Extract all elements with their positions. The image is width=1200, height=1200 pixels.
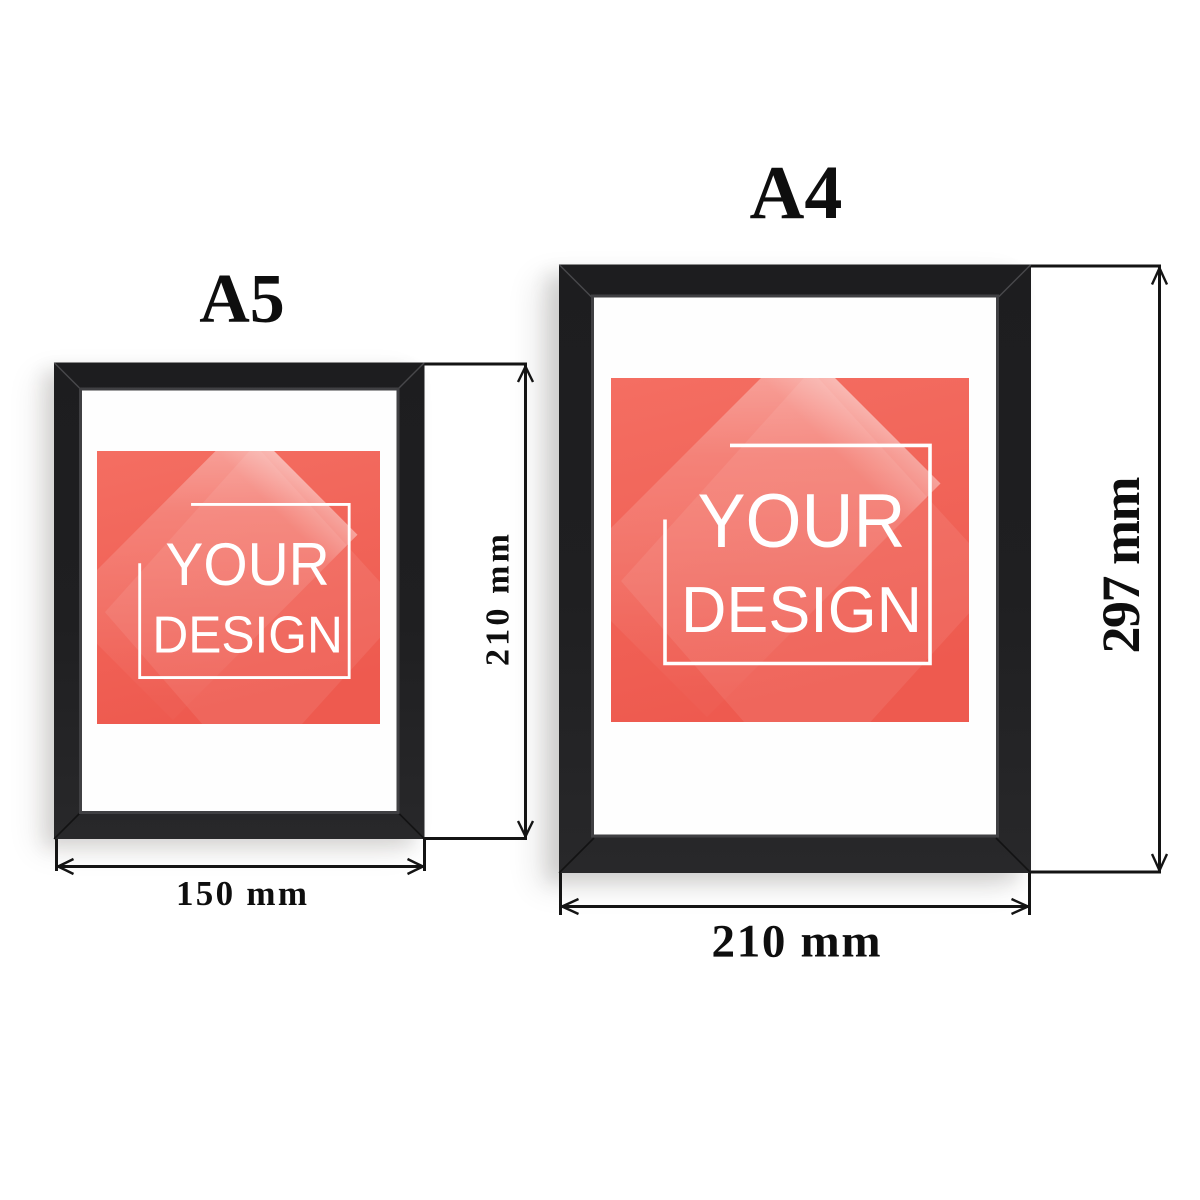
svg-text:A5: A5 — [199, 261, 285, 338]
svg-text:210 mm: 210 mm — [712, 916, 881, 968]
svg-text:150 mm: 150 mm — [176, 874, 307, 913]
svg-text:A4: A4 — [750, 151, 843, 235]
svg-text:297 mm: 297 mm — [1091, 476, 1151, 653]
svg-text:210 mm: 210 mm — [480, 534, 517, 666]
